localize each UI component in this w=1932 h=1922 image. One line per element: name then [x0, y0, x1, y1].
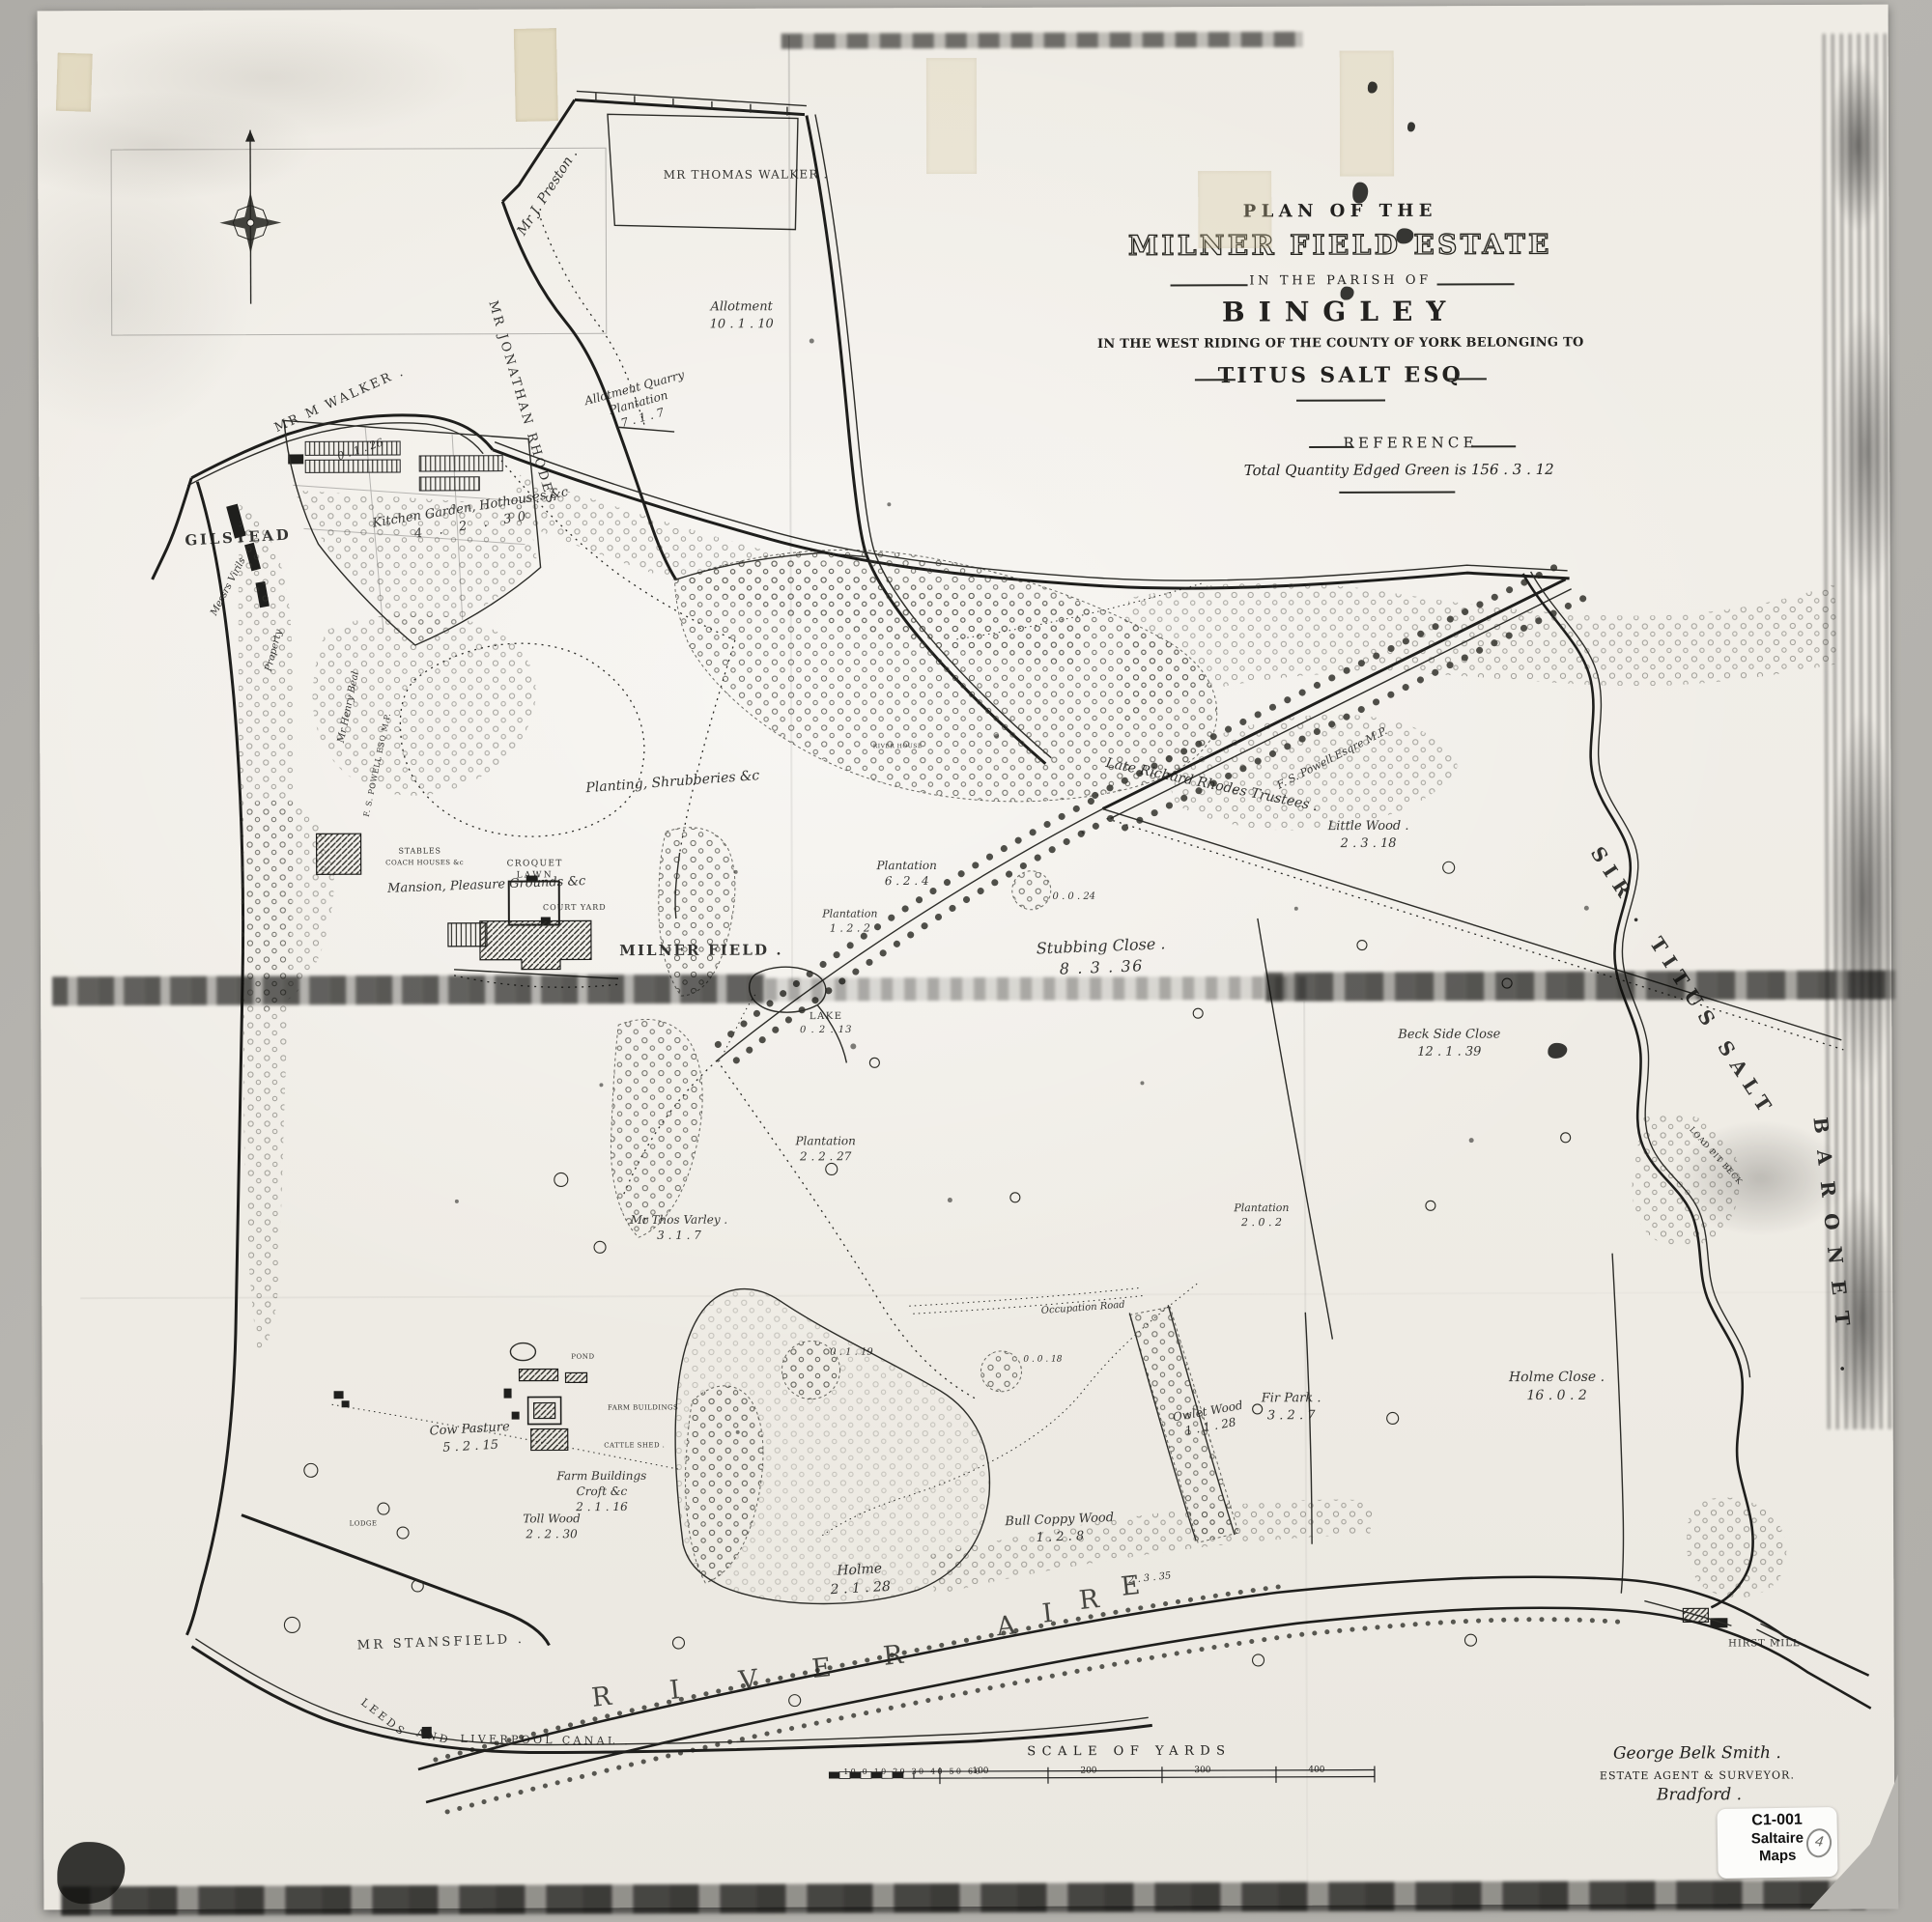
- ink-blob: [1341, 287, 1354, 300]
- fold-line-lower: [80, 1291, 1896, 1300]
- fold-smudge-left: [52, 975, 765, 1006]
- ink-blob: [1548, 1043, 1567, 1059]
- paper-creases: [38, 9, 774, 533]
- scanned-map-photo: MR THOMAS WALKER .Mr J. Preston .Allotme…: [0, 0, 1932, 1922]
- ink-blob: [1352, 183, 1368, 204]
- ink-blob: [1407, 122, 1415, 131]
- tape-stain: [1198, 171, 1271, 248]
- right-mid-smudge: [1644, 1087, 1877, 1271]
- fold-smudge-center: [765, 976, 1306, 1002]
- fold-smudge-right: [1265, 971, 1895, 1002]
- fold-line-vertical-2: [1303, 1002, 1308, 1890]
- sticker-code: C1-001: [1717, 1811, 1836, 1830]
- fold-line-vertical: [788, 36, 793, 982]
- bottom-edge-toner: [61, 1880, 1865, 1916]
- ink-blob: [1396, 228, 1413, 243]
- scan-artifacts: [38, 5, 1895, 1910]
- map-sheet: MR THOMAS WALKER .Mr J. Preston .Allotme…: [38, 5, 1895, 1910]
- tape-piece: [926, 58, 977, 174]
- tape-piece: [514, 28, 558, 122]
- archive-sticker: C1-001 Saltaire Maps 4: [1717, 1807, 1837, 1879]
- tape-piece: [1340, 50, 1394, 176]
- top-edge-smear: [781, 32, 1303, 49]
- tape-piece: [56, 53, 93, 112]
